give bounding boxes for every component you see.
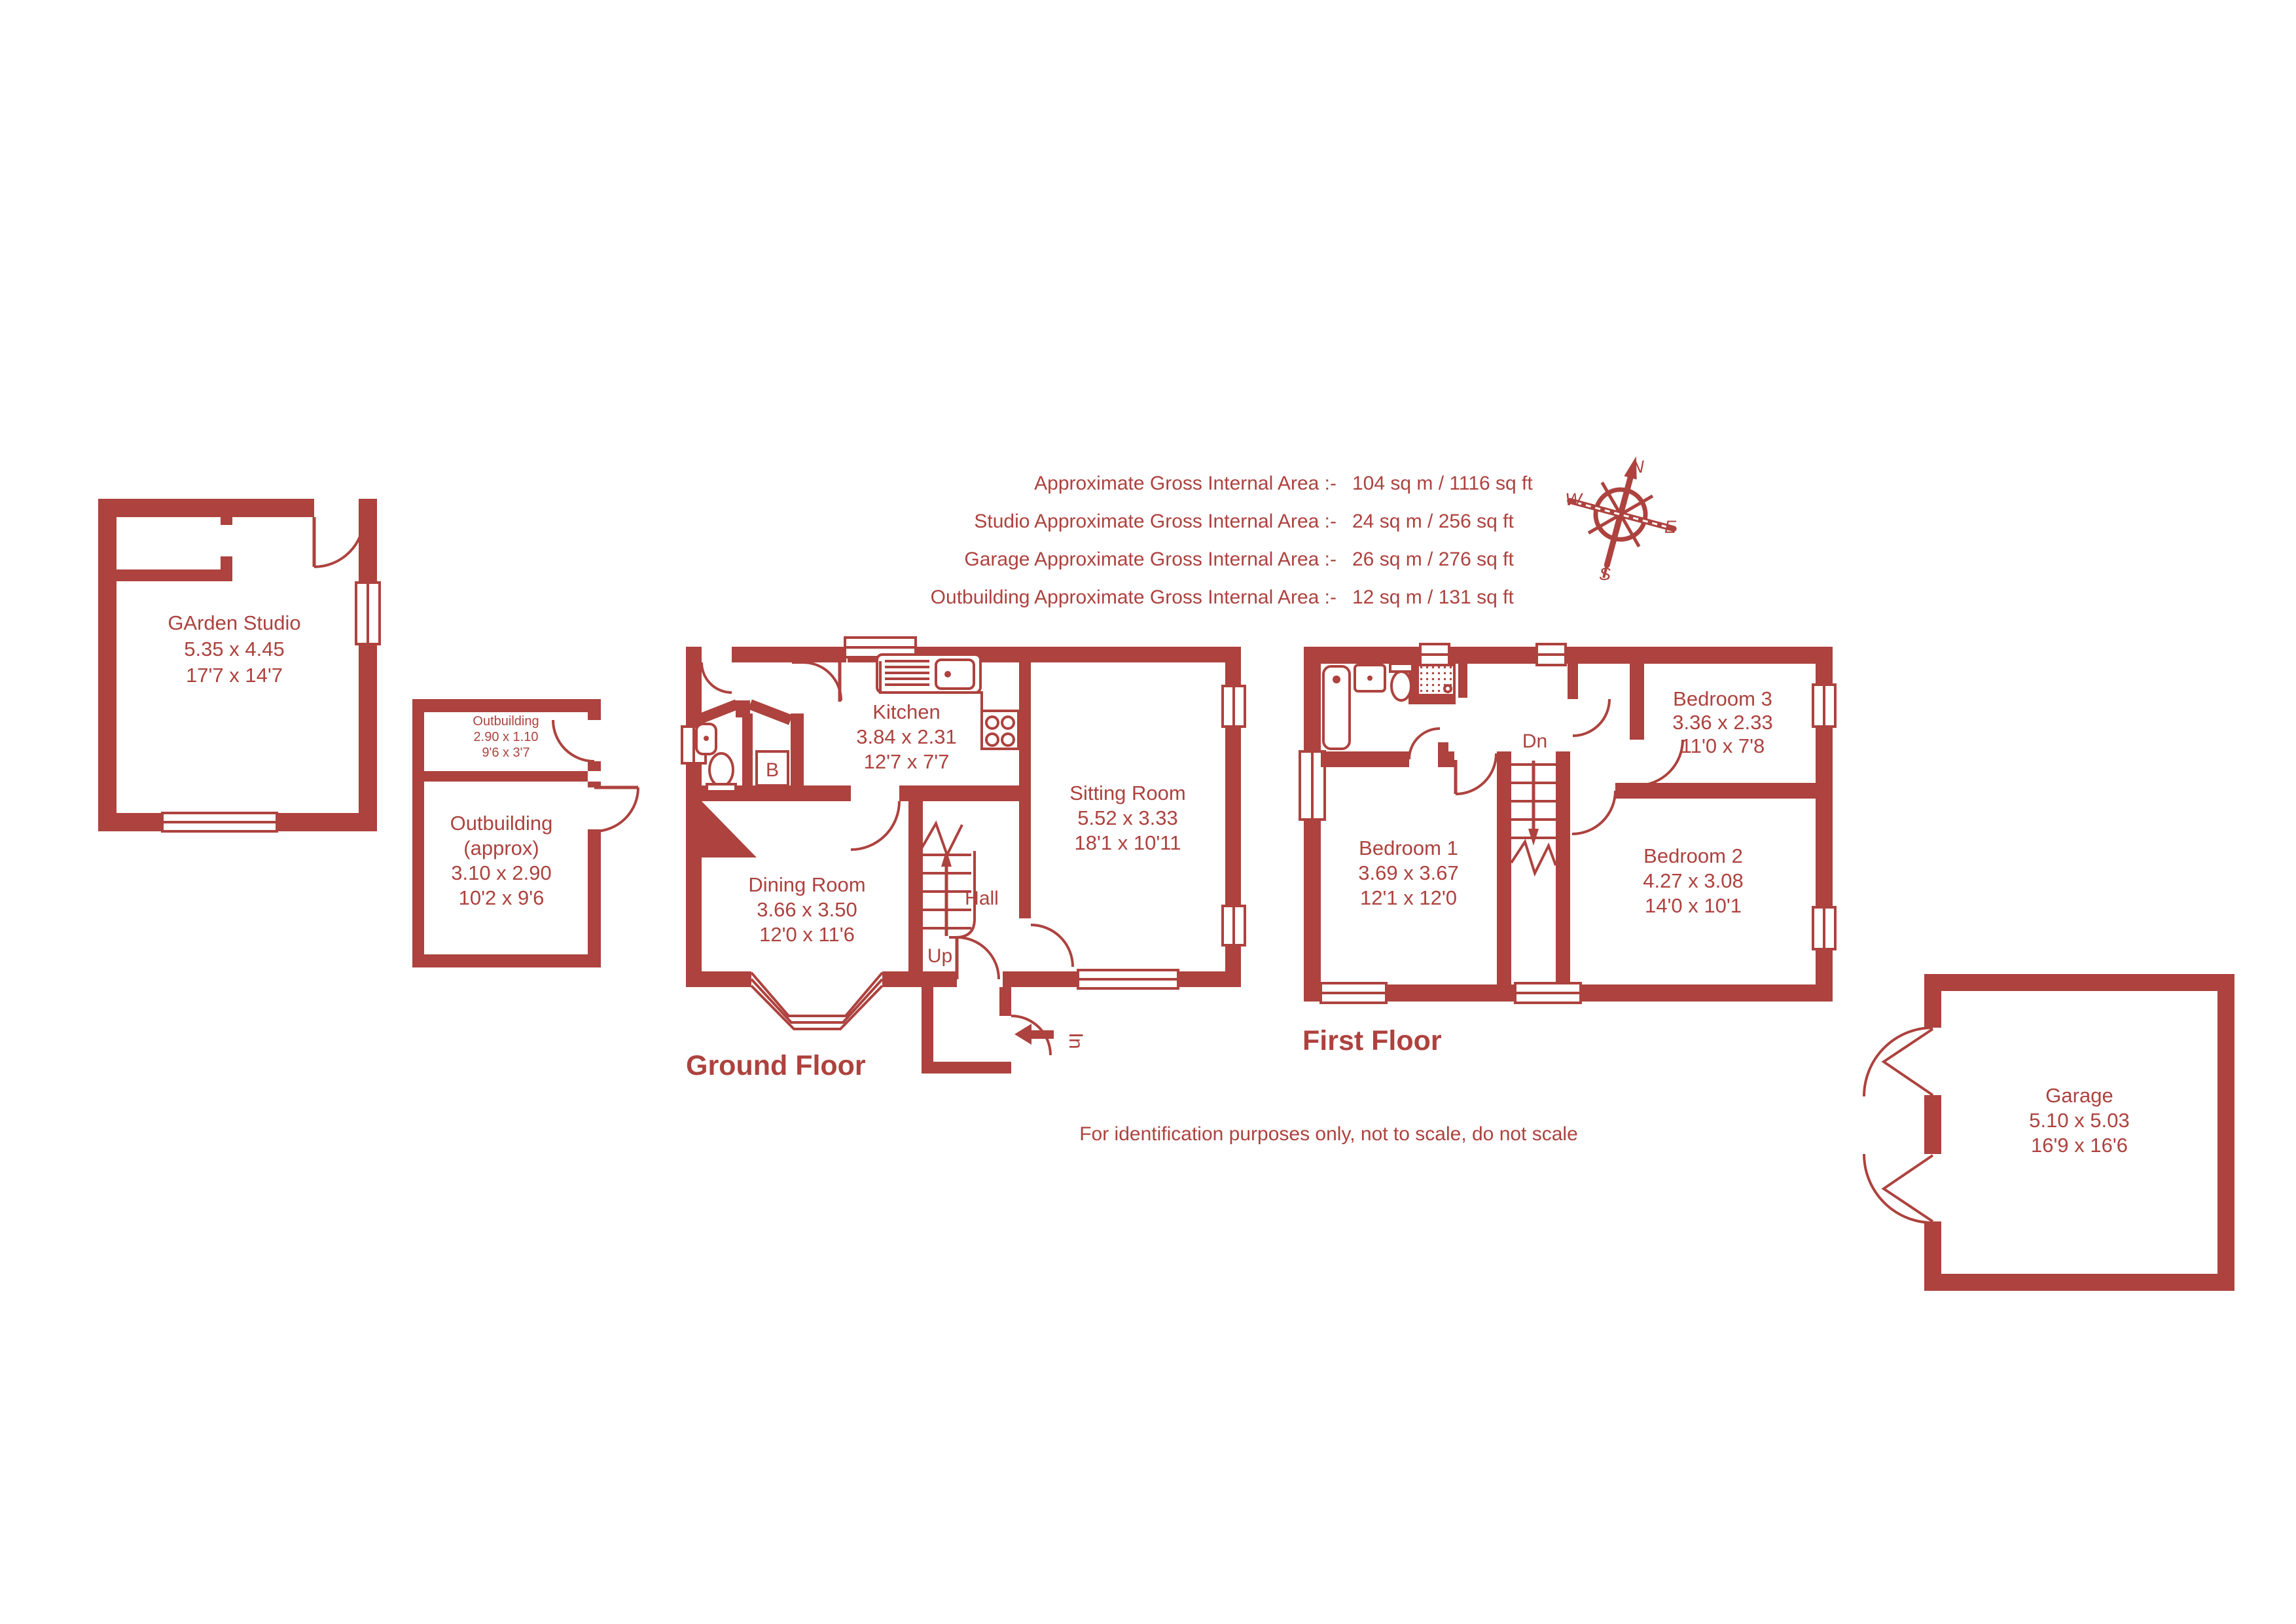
area-line-label: Studio Approximate Gross Internal Area :… [974, 511, 1336, 532]
down-label: Dn [1522, 731, 1547, 752]
stairs-down [1497, 751, 1570, 984]
door-arc [1637, 740, 1683, 785]
area-line-label: Approximate Gross Internal Area :- [1034, 473, 1336, 494]
area-line-value: 104 sq m / 1116 sq ft [1352, 473, 1533, 494]
room-dim-metric: 3.10 x 2.90 [451, 861, 551, 884]
room-dim-metric: 3.69 x 3.67 [1358, 861, 1458, 884]
door-arc [1456, 753, 1496, 794]
area-line-value: 12 sq m / 131 sq ft [1352, 586, 1514, 608]
room-dim-imperial: 11'0 x 7'8 [1681, 734, 1765, 757]
room-dim-metric: 5.10 x 5.03 [2029, 1109, 2129, 1132]
room-dim-metric: 5.35 x 4.45 [184, 638, 284, 660]
door-arc [1864, 1154, 1933, 1223]
area-line-label: Outbuilding Approximate Gross Internal A… [931, 586, 1336, 608]
room-label-bedroom3: Bedroom 3 [1673, 687, 1772, 710]
compass-south-label: S [1599, 564, 1611, 584]
compass-north-label: N [1631, 457, 1644, 477]
stairs-up [922, 823, 975, 937]
room-dim-metric: 4.27 x 3.08 [1643, 869, 1743, 892]
room-label-hall: Hall [965, 888, 999, 909]
basin-icon [1355, 665, 1385, 691]
door-arc [553, 720, 594, 761]
room-label-dining-room: Dining Room [748, 873, 865, 896]
room-dim-imperial: 14'0 x 10'1 [1645, 894, 1742, 917]
room-dim-imperial: 12'1 x 12'0 [1360, 886, 1457, 909]
room-dim-imperial: 17'7 x 14'7 [186, 664, 283, 687]
door-arc [1572, 791, 1615, 834]
room-label-qualifier: (approx) [463, 837, 539, 859]
room-dim-metric: 3.66 x 3.50 [757, 898, 857, 921]
room-label-kitchen: Kitchen [872, 700, 940, 723]
disclaimer-text: For identification purposes only, not to… [1079, 1123, 1578, 1145]
room-dim-imperial: 10'2 x 9'6 [459, 886, 545, 909]
ground-floor-plan: In [682, 638, 1245, 1081]
toilet-icon [707, 753, 736, 791]
sink-icon [877, 655, 980, 693]
ground-floor-title: Ground Floor [686, 1050, 866, 1081]
door-arc [803, 662, 841, 700]
room-label-garage: Garage [2045, 1084, 2113, 1107]
door-arc [1031, 925, 1073, 967]
first-floor-title: First Floor [1302, 1025, 1442, 1056]
bath-icon [1323, 666, 1350, 749]
first-floor-plan: Dn Bedroom 1 3.69 x 3.67 12'1 x 12'0 Bed… [1300, 644, 1835, 1056]
room-dim-imperial: 16'9 x 16'6 [2031, 1134, 2128, 1157]
door-arc [314, 517, 364, 567]
room-dim-metric: 5.52 x 3.33 [1077, 806, 1177, 829]
door-arc [702, 662, 732, 693]
floorplan-canvas: Approximate Gross Internal Area :- 104 s… [0, 0, 2296, 1624]
room-dim-imperial: 9'6 x 3'7 [482, 746, 529, 760]
area-summary: Approximate Gross Internal Area :- 104 s… [931, 473, 1534, 608]
room-dim-metric: 3.36 x 2.33 [1672, 711, 1772, 734]
area-line-label: Garage Approximate Gross Internal Area :… [964, 549, 1336, 570]
bay-window [751, 973, 882, 1029]
toilet-icon [1390, 664, 1412, 700]
room-dim-metric: 3.84 x 2.31 [856, 725, 956, 748]
outbuilding-plan: Outbuilding 2.90 x 1.10 9'6 x 3'7 Outbui… [412, 699, 638, 967]
compass-icon: N W E S [1553, 442, 1689, 592]
garage-plan: Garage 5.10 x 5.03 16'9 x 16'6 [1864, 974, 2234, 1291]
in-label: In [1065, 1032, 1086, 1049]
door-arc [1864, 1028, 1933, 1096]
room-label-outbuilding: Outbuilding [450, 812, 553, 835]
room-dim-metric: 2.90 x 1.10 [474, 730, 539, 744]
door-arc [851, 801, 899, 850]
door-arc [1409, 729, 1440, 759]
room-label-sitting-room: Sitting Room [1069, 782, 1185, 804]
boiler-cupboard: B [757, 751, 788, 785]
room-label-bedroom1: Bedroom 1 [1359, 837, 1458, 859]
room-label-garden-studio: GArden Studio [168, 611, 300, 634]
garden-studio-plan: GArden Studio 5.35 x 4.45 17'7 x 14'7 [98, 499, 380, 831]
room-label-bedroom2: Bedroom 2 [1643, 844, 1743, 867]
compass-east-label: E [1664, 517, 1677, 537]
door-arc [1573, 699, 1609, 736]
up-label: Up [927, 945, 952, 967]
boiler-label: B [766, 759, 779, 781]
door-arc [957, 937, 999, 979]
area-line-value: 26 sq m / 276 sq ft [1352, 549, 1514, 570]
basin-icon [696, 724, 716, 754]
shower-icon [1418, 665, 1454, 695]
room-dim-imperial: 12'0 x 11'6 [759, 923, 855, 946]
area-line-value: 24 sq m / 256 sq ft [1352, 511, 1514, 532]
room-label-outbuilding-store: Outbuilding [473, 714, 539, 729]
hob-icon [982, 711, 1018, 749]
door-arc [594, 787, 638, 831]
room-dim-imperial: 12'7 x 7'7 [864, 750, 950, 773]
compass-west-label: W [1565, 490, 1583, 509]
room-dim-imperial: 18'1 x 10'11 [1075, 831, 1181, 854]
